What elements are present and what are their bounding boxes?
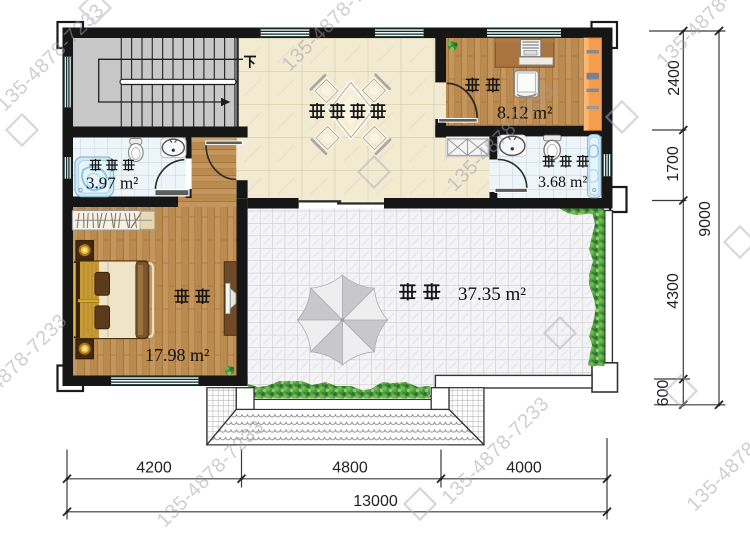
svg-text:9000: 9000: [697, 201, 714, 237]
svg-text:4000: 4000: [506, 460, 542, 477]
svg-text:17.98 m²: 17.98 m²: [145, 345, 209, 365]
svg-text:37.35 m²: 37.35 m²: [458, 284, 526, 305]
svg-text:600: 600: [655, 380, 672, 407]
svg-text:4300: 4300: [665, 273, 682, 309]
svg-text:13000: 13000: [353, 493, 398, 510]
svg-text:3.97 m²: 3.97 m²: [86, 174, 138, 193]
svg-text:4200: 4200: [136, 460, 172, 477]
svg-text:3.68 m²: 3.68 m²: [538, 174, 587, 191]
svg-text:4800: 4800: [332, 460, 368, 477]
svg-text:1700: 1700: [665, 146, 682, 182]
